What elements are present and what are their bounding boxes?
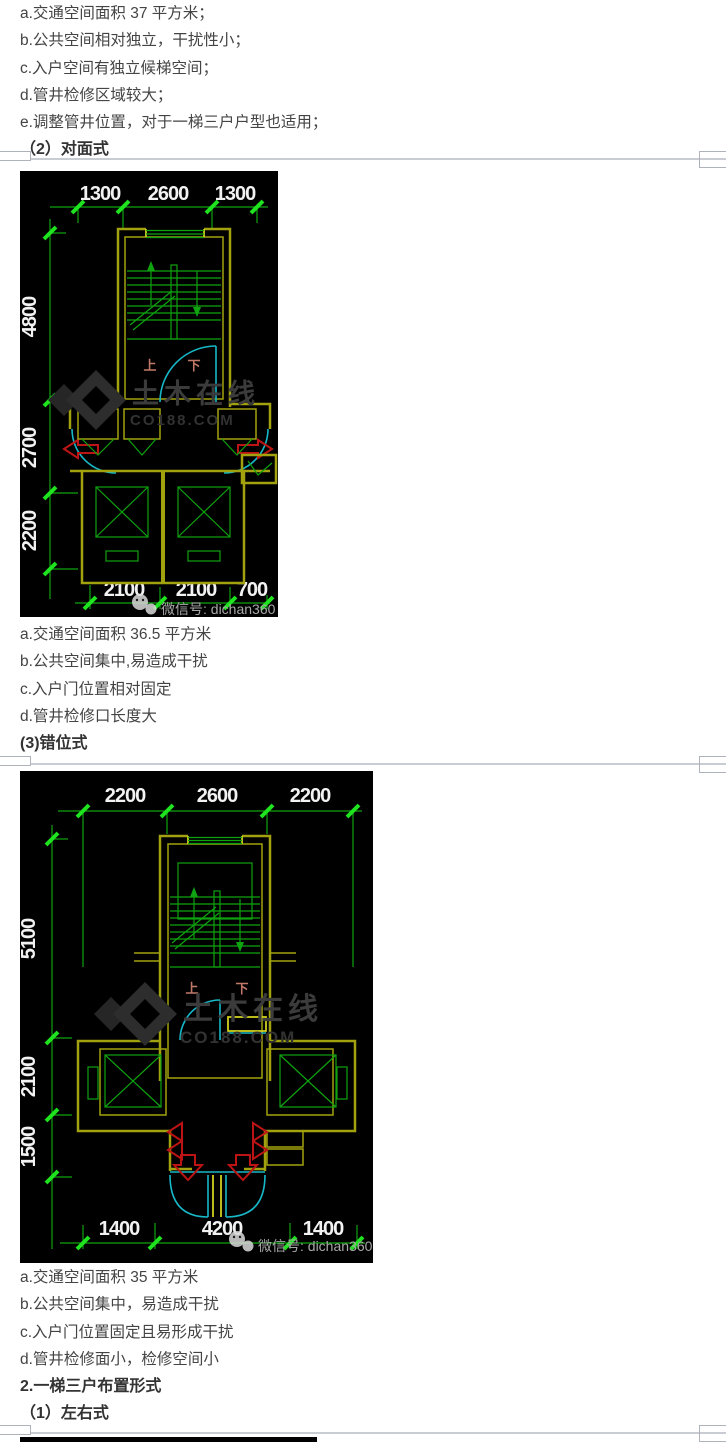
article-page: a.交通空间面积 37 平方米； b.公共空间相对独立，干扰性小； c.入户空间…	[0, 0, 726, 1442]
note-line: c.入户门位置固定且易形成干扰	[20, 1319, 234, 1346]
dim-top-1: 2200	[105, 785, 146, 807]
section-yitisanhu-notes: a.交通空间面积 35 平方米 b.公共空间集中，易造成干扰 c.入户门位置固定…	[20, 1264, 234, 1428]
note-line: e.调整管井位置，对于一梯三户户型也适用；	[20, 109, 327, 136]
dim-left-3: 1500	[20, 1126, 40, 1167]
page-break-divider	[0, 755, 726, 772]
dim-left-1: 4800	[20, 296, 41, 337]
floor-plan-image-cuoweishi[interactable]: 2200 2600 2200 5100 2100 1500 1400 4200 …	[20, 771, 373, 1263]
floor-plan-image-duimianshi[interactable]: 1300 2600 1300 4800 2700 2200 2100 2100 …	[20, 171, 278, 617]
watermark-wechat-text: 微信号: dichan360	[161, 601, 276, 617]
dim-top-2: 2600	[148, 183, 189, 205]
page-break-left-mark-icon	[0, 151, 31, 161]
page-break-left-mark-icon	[0, 1425, 31, 1435]
watermark-site-text: CO188.COM	[180, 1028, 296, 1047]
wechat-icon	[229, 1231, 245, 1247]
note-line: b.公共空间相对独立，干扰性小；	[20, 27, 327, 54]
subsection-heading-cuoweishi: (3)错位式	[20, 730, 211, 757]
dim-top-3: 2200	[290, 785, 331, 807]
watermark-site-text: CO188.COM	[130, 412, 235, 429]
note-line: d.管井检修口长度大	[20, 703, 211, 730]
note-line: a.交通空间面积 36.5 平方米	[20, 621, 211, 648]
note-line: a.交通空间面积 37 平方米；	[20, 0, 327, 27]
divider-line	[0, 763, 726, 765]
divider-line	[0, 158, 726, 160]
dim-top-2: 2600	[197, 785, 238, 807]
dim-left-3: 2200	[20, 510, 41, 551]
page-break-right-mark-icon	[699, 756, 726, 773]
section-duimianshi-notes: a.交通空间面积 37 平方米； b.公共空间相对独立，干扰性小； c.入户空间…	[20, 0, 327, 164]
watermark-brand-text: 土木在线	[183, 993, 323, 1026]
next-image-edge	[20, 1437, 317, 1442]
note-line: c.入户门位置相对固定	[20, 676, 211, 703]
dim-left-2: 2700	[20, 427, 41, 468]
stair-up-label: 上	[143, 358, 156, 373]
dim-top-3: 1300	[215, 183, 256, 205]
note-line: d.管井检修面小，检修空间小	[20, 1346, 234, 1373]
note-line: b.公共空间集中,易造成干扰	[20, 648, 211, 675]
watermark-wechat-text: 微信号: dichan360	[258, 1238, 373, 1254]
page-break-right-mark-icon	[699, 151, 726, 168]
divider-line	[0, 1432, 726, 1434]
note-line: a.交通空间面积 35 平方米	[20, 1264, 234, 1291]
dim-bottom-1: 1400	[99, 1218, 140, 1240]
watermark-brand-text: 土木在线	[132, 379, 260, 409]
wechat-icon	[132, 594, 148, 610]
dim-bottom-3: 1400	[303, 1218, 344, 1240]
page-break-left-mark-icon	[0, 756, 31, 766]
page-break-right-mark-icon	[699, 1425, 726, 1442]
note-line: b.公共空间集中，易造成干扰	[20, 1291, 234, 1318]
note-line: d.管井检修区域较大；	[20, 82, 327, 109]
section-heading-yitisanhu: 2.一梯三户布置形式	[20, 1373, 234, 1400]
section-cuoweishi-notes: a.交通空间面积 36.5 平方米 b.公共空间集中,易造成干扰 c.入户门位置…	[20, 621, 211, 757]
dim-left-1: 5100	[20, 918, 40, 959]
page-break-divider	[0, 150, 726, 167]
dim-top-1: 1300	[80, 183, 121, 205]
stair-down-label: 下	[187, 358, 200, 373]
dim-left-2: 2100	[20, 1056, 40, 1097]
note-line: c.入户空间有独立候梯空间；	[20, 55, 327, 82]
